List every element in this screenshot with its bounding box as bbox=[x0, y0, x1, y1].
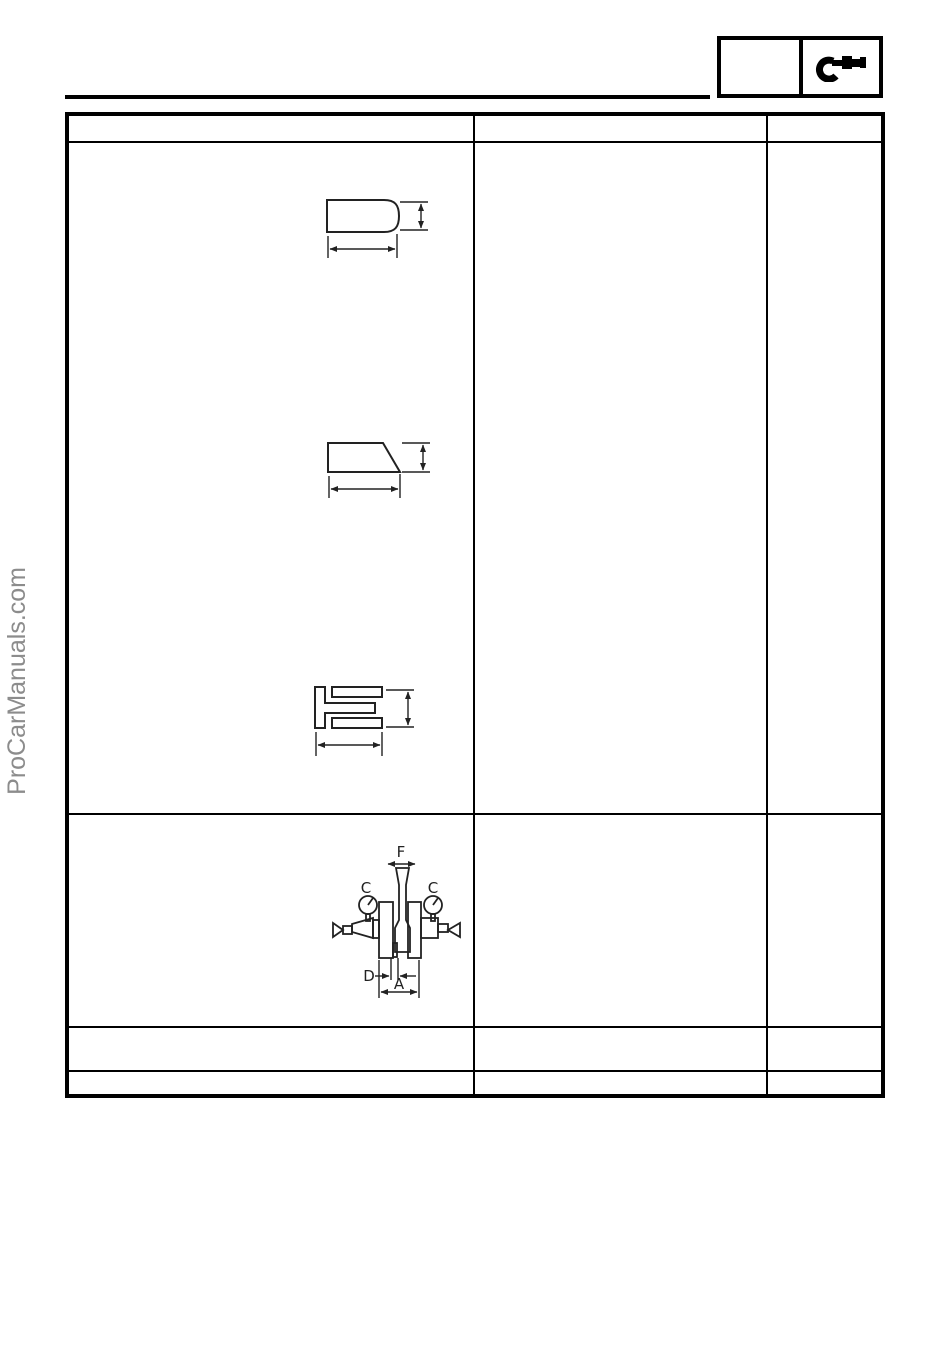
table-cell bbox=[768, 116, 881, 143]
table-cell bbox=[69, 1072, 475, 1094]
taper-face-ring-cross-section-icon bbox=[320, 436, 434, 502]
crank-label-c-right: C bbox=[428, 879, 438, 897]
table-cell bbox=[475, 815, 768, 1028]
table-cell bbox=[768, 1072, 881, 1094]
oil-control-ring-cross-section-icon bbox=[310, 682, 418, 760]
micrometer-icon bbox=[815, 52, 867, 82]
chapter-tab bbox=[717, 36, 883, 98]
watermark: ProCarManuals.com bbox=[0, 556, 34, 806]
table-cell bbox=[69, 116, 475, 143]
chapter-tab-empty-cell bbox=[721, 40, 803, 94]
crank-label-c-left: C bbox=[361, 879, 371, 897]
table-cell bbox=[768, 143, 881, 815]
manual-page: F C C D A ProCarManuals.com bbox=[0, 0, 950, 1370]
barrel-face-ring-cross-section-icon bbox=[320, 193, 432, 261]
table-cell bbox=[475, 143, 768, 815]
spec-table bbox=[65, 112, 885, 1098]
crank-label-a: A bbox=[394, 975, 405, 993]
table-cell bbox=[768, 1028, 881, 1072]
table-cell bbox=[475, 1072, 768, 1094]
table-cell bbox=[475, 116, 768, 143]
table-cell bbox=[69, 1028, 475, 1072]
header-divider bbox=[65, 95, 710, 99]
crank-label-d: D bbox=[363, 967, 375, 985]
watermark-text: ProCarManuals.com bbox=[3, 567, 32, 795]
chapter-tab-icon-cell bbox=[803, 40, 879, 94]
crankshaft-runout-measurement-icon: F C C D A bbox=[325, 840, 470, 1002]
table-cell bbox=[768, 815, 881, 1028]
table-cell bbox=[475, 1028, 768, 1072]
crank-label-f: F bbox=[397, 843, 406, 861]
